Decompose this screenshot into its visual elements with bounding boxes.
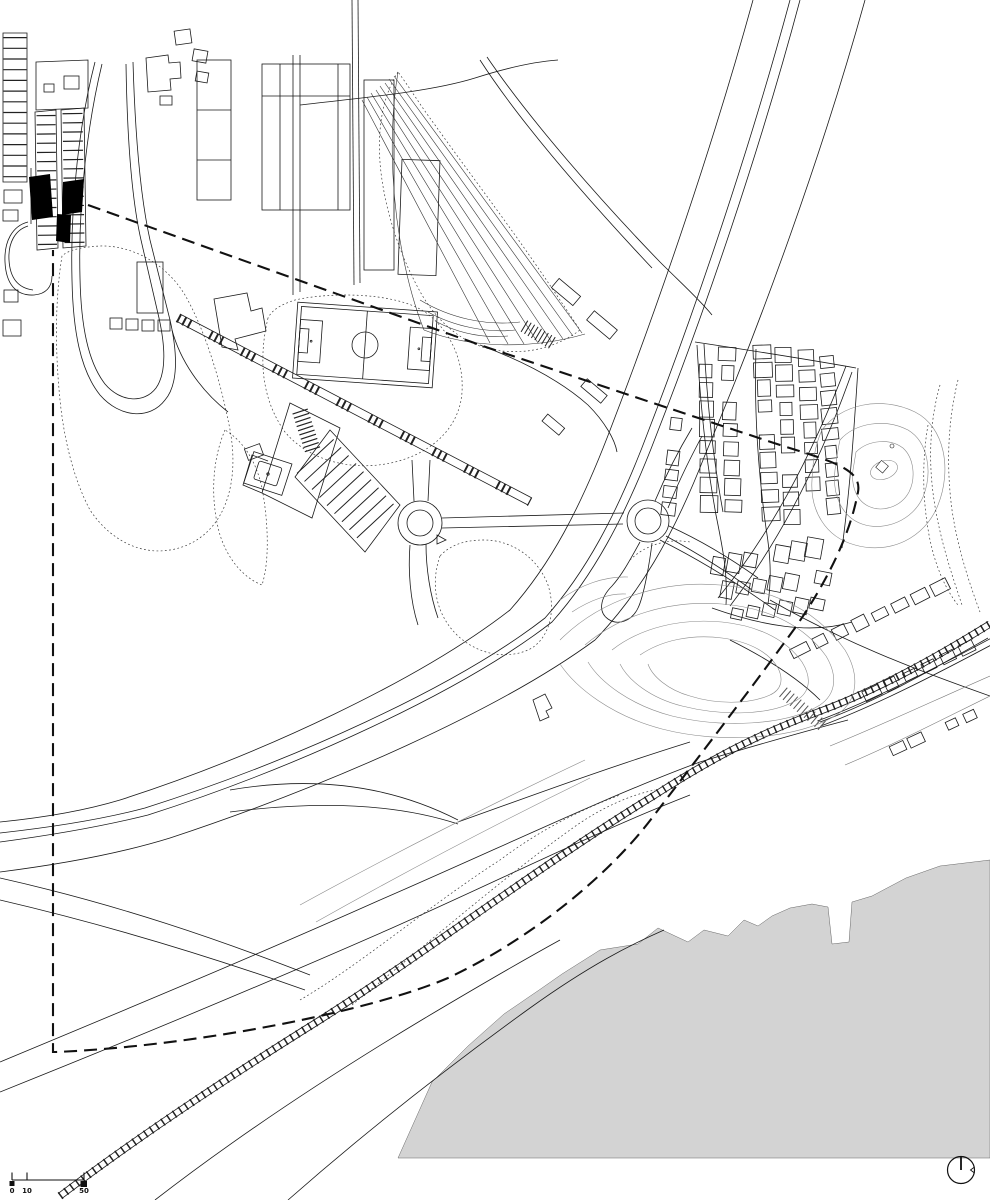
football-pitch (293, 302, 438, 388)
scale-tick-50: 50 (79, 1187, 89, 1195)
building-parcel (798, 350, 814, 367)
building-parcel (760, 452, 776, 468)
building-parcel (723, 442, 738, 457)
site-plan-drawing: 0 10 50 (0, 0, 990, 1200)
roundabout-east (602, 428, 758, 622)
site-building (56, 214, 71, 243)
building-parcel (804, 537, 823, 559)
building-parcel (718, 347, 736, 361)
building-parcel (782, 475, 797, 488)
building-parcel (782, 573, 799, 592)
building-parcel (907, 732, 926, 748)
building-parcel (784, 509, 800, 524)
north-indicator (948, 1157, 975, 1184)
scale-tick-10: 10 (22, 1187, 32, 1195)
building-parcel (724, 478, 741, 495)
building-parcel (889, 740, 907, 755)
building-parcel (799, 387, 816, 401)
building-parcel (780, 402, 792, 415)
building-parcel (730, 608, 743, 621)
vegetation (56, 72, 980, 1005)
building-parcel (825, 445, 837, 459)
building-parcel (820, 373, 836, 388)
apartment-blocks (197, 0, 712, 315)
building-parcel (762, 602, 777, 617)
harbor-quay-inner (9, 226, 33, 290)
terraced-hill (362, 72, 585, 345)
building-parcel (945, 718, 959, 730)
contours (300, 404, 945, 922)
old-town-streets (660, 342, 858, 700)
building-parcel (930, 578, 951, 597)
loop-road (72, 62, 176, 414)
building-parcel (781, 437, 795, 453)
building-parcel (820, 390, 836, 406)
building-parcel (722, 402, 736, 420)
slope-hatch (783, 692, 824, 727)
building-parcel (775, 365, 792, 382)
station-area (770, 600, 990, 765)
pedestrian-axis (176, 314, 532, 505)
building (137, 262, 163, 313)
building-parcel (789, 641, 810, 658)
building-parcel (699, 382, 713, 397)
building-parcel (761, 472, 778, 484)
sea-polygon (398, 860, 990, 1158)
sea-water (398, 860, 990, 1158)
harbor-quay (5, 222, 52, 295)
site-building (62, 179, 84, 215)
building-parcel (800, 404, 818, 419)
building-parcel (812, 633, 828, 648)
building-parcel (753, 362, 772, 378)
building-parcel (776, 385, 794, 397)
building-parcel (722, 365, 735, 380)
building-parcel (826, 480, 840, 496)
scale-tick-0: 0 (10, 1187, 15, 1195)
building-parcel (758, 400, 772, 412)
harbor-area (3, 33, 228, 414)
building-parcel (789, 541, 808, 562)
building-parcel (851, 614, 870, 632)
link-road (442, 513, 624, 528)
building-parcel (725, 500, 742, 513)
building-parcel (963, 709, 978, 722)
building-parcel (781, 420, 794, 435)
building-parcel (783, 492, 799, 506)
scale-bar: 0 10 50 (10, 1173, 89, 1196)
building-parcel (746, 605, 760, 619)
building-parcel (670, 417, 683, 430)
building-parcel (742, 552, 758, 568)
building-parcel (910, 587, 930, 605)
site-building (29, 174, 53, 220)
building-parcel (661, 502, 676, 516)
rowhouse-strip (3, 33, 27, 336)
building-parcel (799, 370, 816, 382)
u-turn-loop (602, 542, 652, 622)
highway (0, 0, 865, 872)
building-parcel (726, 552, 742, 573)
building-parcel (891, 597, 910, 613)
terraced-field (295, 430, 400, 552)
building-parcel (700, 477, 717, 493)
building-parcel (804, 422, 817, 438)
building-parcel (761, 490, 779, 503)
hilltop-houses (146, 29, 209, 105)
hillside-buildings (480, 278, 617, 452)
station-track (817, 637, 990, 721)
loop-road-inner (80, 64, 164, 399)
building-parcel (710, 556, 725, 575)
steps (300, 411, 313, 451)
building-parcel (871, 606, 889, 621)
building-parcel (773, 545, 791, 564)
building-parcel (724, 460, 740, 476)
building-parcel (757, 380, 770, 397)
valley-contours (300, 577, 855, 922)
site-plan-sheet: 0 10 50 (0, 0, 990, 1200)
roundabout-west (398, 460, 446, 625)
building-parcel (720, 581, 735, 600)
